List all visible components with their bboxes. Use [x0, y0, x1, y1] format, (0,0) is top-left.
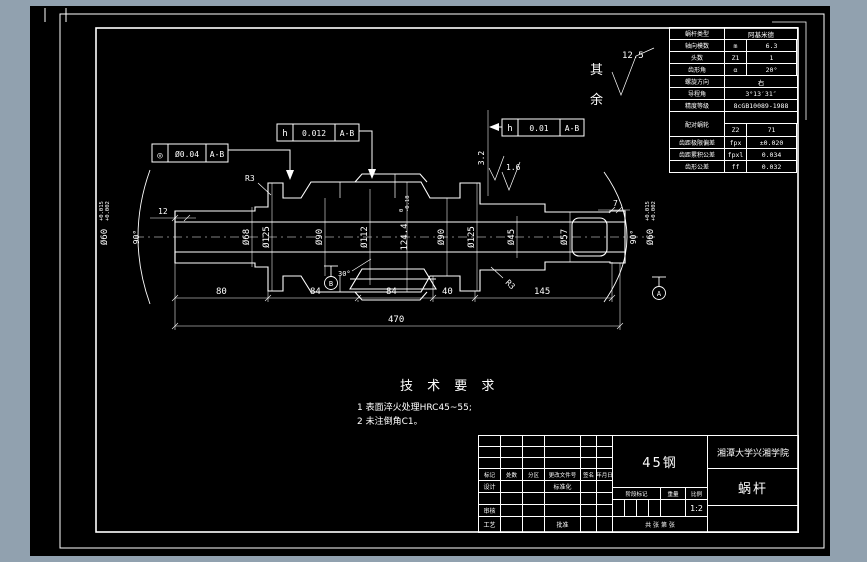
process-label: 工艺 — [478, 516, 501, 533]
dim-len12: 12 — [158, 207, 168, 216]
dim-angle-left: 90° — [132, 230, 141, 244]
param-symbol: Z2 — [724, 123, 747, 137]
datum-b-label: B — [329, 280, 333, 288]
approve-label: 批准 — [544, 516, 581, 533]
dim-r3-left: R3 — [245, 174, 255, 183]
param-label: 齿形公差 — [669, 160, 725, 173]
weight-value-cell — [660, 499, 686, 517]
runout-journal-value: 0.01 — [529, 124, 548, 133]
part-name-cell: 蜗杆 — [707, 468, 799, 506]
roughness-32: 3.2 — [477, 151, 486, 166]
drawing-number-cell — [707, 505, 799, 533]
dim-chain-84a: 84 — [310, 287, 321, 297]
tech-req-line1: 1 表面淬火处理HRC45~55; — [357, 401, 472, 413]
worm-parameter-table: 蜗杆类型 阿基米德 轴向模数 m 6.3 头数 Z1 1 齿形角 α 20° 螺… — [670, 28, 799, 173]
tech-req-title: 技 术 要 求 — [400, 379, 499, 394]
roughness-16: 1.6 — [506, 163, 521, 172]
dim-angle-30: 30° — [338, 270, 351, 278]
dim-d60-right: Ø60 +0.015 +0.002 — [645, 201, 657, 245]
dim-d68: Ø68 — [241, 229, 252, 245]
runout-journal-datum: A-B — [565, 124, 580, 133]
dim-text: Ø60 — [645, 229, 656, 245]
datum-a-label: A — [657, 290, 662, 298]
param-row: 齿形公差 ff 0.032 — [670, 160, 799, 173]
runout-worm-symbol: h — [282, 129, 287, 139]
param-label: 配对蜗轮 — [669, 111, 725, 137]
runout-journal-symbol: h — [507, 124, 512, 134]
runout-worm-value: 0.012 — [302, 129, 326, 138]
company-cell: 湘潭大学兴湘学院 — [707, 435, 799, 469]
material-cell: 45钢 — [612, 435, 708, 488]
dim-chain-84b: 84 — [386, 287, 397, 297]
dim-total-470: 470 — [388, 315, 404, 325]
surface-note-char1: 其 — [590, 63, 603, 78]
dim-d90-left: Ø90 — [314, 229, 325, 245]
concentricity-symbol: ◎ — [157, 151, 163, 161]
dim-chain-80: 80 — [216, 287, 227, 297]
dim-text: Ø60 — [99, 229, 110, 245]
sheet-info-cell: 共 张 第 张 — [612, 516, 708, 533]
dim-angle-right: 90° — [629, 230, 638, 244]
cad-application-canvas: 技 术 要 求 1 表面淬火处理HRC45~55; 2 未注倒角C1。 其 余 … — [0, 0, 867, 562]
dim-d125-right: Ø125 — [466, 226, 477, 248]
surface-note-value: 12.5 — [622, 51, 644, 61]
blank-cell — [500, 516, 523, 533]
blank-cell — [596, 516, 613, 533]
hatch-band-bottom — [175, 252, 625, 292]
dim-d125-left: Ø125 — [261, 226, 272, 248]
dim-chain-145: 145 — [534, 287, 550, 297]
dim-len7: 7 — [613, 199, 618, 208]
dim-chain-40: 40 — [442, 287, 453, 297]
blank-cell — [580, 516, 597, 533]
concentricity-datum: A-B — [210, 150, 225, 159]
hatch-band-top — [175, 182, 625, 222]
dim-d45: Ø45 — [506, 229, 517, 245]
concentricity-value: Ø0.04 — [175, 149, 199, 159]
scale-value-cell: 1:2 — [685, 499, 708, 517]
param-row-mating-wheel: 配对蜗轮 Z2 71 — [670, 111, 799, 137]
title-block: 标记 处数 分区 更改文件号 签名 年月日 设计 标准化 审核 工艺 批准 45… — [478, 435, 799, 533]
param-symbol: ff — [724, 160, 747, 173]
blank-cell — [522, 516, 545, 533]
dim-r3-right: R3 — [504, 278, 517, 291]
dim-d57: Ø57 — [559, 229, 570, 245]
dim-d112: Ø112 — [359, 226, 370, 248]
tech-req-line2: 2 未注倒角C1。 — [357, 415, 423, 427]
runout-worm-datum: A-B — [340, 129, 355, 138]
dim-tol-lower: +0.002 — [651, 201, 657, 221]
dim-text: 124.4 — [400, 223, 410, 250]
dim-tol-lower: +0.002 — [105, 201, 111, 221]
dim-tol-lower: -0.18 — [405, 195, 411, 212]
param-value: 0.032 — [746, 160, 797, 173]
dim-d90-right: Ø90 — [436, 229, 447, 245]
dim-d60-left: Ø60 +0.015 +0.002 — [99, 201, 111, 245]
surface-note-char2: 余 — [590, 92, 603, 108]
param-value: 71 — [746, 123, 797, 137]
